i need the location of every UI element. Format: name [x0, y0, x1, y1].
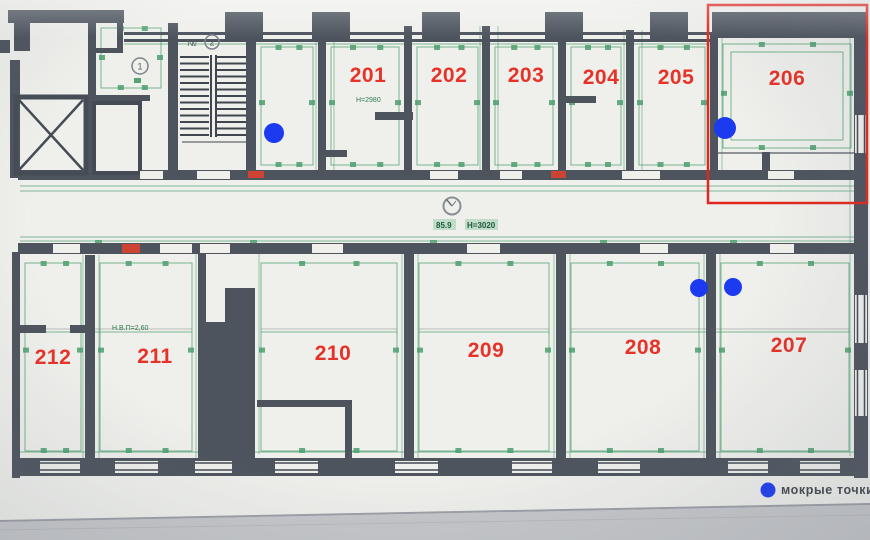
green-mark [607, 261, 613, 266]
wall-segment [257, 400, 352, 407]
green-mark [534, 45, 540, 50]
green-mark [41, 448, 47, 453]
wall-segment [18, 243, 868, 254]
room-number-label: 209 [468, 339, 505, 362]
green-mark [637, 100, 643, 105]
corridor-height-label: Н=3020 [467, 221, 496, 230]
wall-segment [205, 322, 227, 462]
door-opening [640, 244, 668, 253]
green-mark [474, 100, 480, 105]
room-number-label: 201 [350, 64, 387, 87]
green-mark [701, 100, 707, 105]
green-mark [808, 261, 814, 266]
door-opening [768, 171, 794, 179]
room-number-label: 212 [35, 346, 72, 369]
green-mark [759, 145, 765, 150]
closet-walls [94, 103, 140, 173]
green-mark [658, 261, 664, 266]
room-number-label: 207 [771, 334, 808, 357]
green-mark [350, 162, 356, 167]
door-opening [200, 244, 230, 253]
green-mark [757, 261, 763, 266]
stair-circle-number: 2 [209, 38, 214, 48]
green-mark [377, 162, 383, 167]
floorplan-photo: Н=2980 85.9 Н=3020 Н.В.П=2,60 № 2 1 2012… [0, 0, 870, 540]
green-mark [329, 100, 335, 105]
green-mark [757, 448, 763, 453]
wall-segment [312, 12, 350, 40]
door-opening [467, 244, 500, 253]
wall-segment [712, 12, 868, 38]
green-mark [395, 100, 401, 105]
wall-segment [96, 95, 150, 101]
wall-segment [710, 34, 718, 178]
wall-segment [225, 12, 263, 40]
wet-point-legend-dot [761, 483, 776, 498]
green-mark [534, 162, 540, 167]
green-mark [350, 45, 356, 50]
green-mark [695, 348, 701, 353]
green-mark [759, 42, 765, 47]
wall-segment [556, 254, 566, 462]
green-mark [721, 91, 727, 96]
green-mark [455, 448, 461, 453]
green-mark [126, 448, 132, 453]
wall-segment [404, 254, 414, 462]
green-mark [810, 145, 816, 150]
green-mark [126, 261, 132, 266]
green-mark [507, 448, 513, 453]
room-number-label: 208 [625, 336, 662, 359]
wet-point-dot [264, 123, 284, 143]
corridor-dial-icon [444, 198, 461, 215]
room-number-label: 204 [583, 66, 620, 89]
green-mark [163, 261, 169, 266]
wall-segment [85, 255, 95, 461]
green-mark [605, 45, 611, 50]
green-mark [605, 162, 611, 167]
wet-point-dot [690, 279, 708, 297]
green-mark [545, 348, 551, 353]
green-mark [23, 348, 29, 353]
green-mark [507, 261, 513, 266]
wall-segment [168, 23, 178, 178]
green-mark [296, 162, 302, 167]
green-mark [458, 162, 464, 167]
wall-segment [246, 23, 256, 178]
wall-segment [566, 96, 596, 103]
corridor-area-label: 85.9 [436, 221, 452, 230]
green-mark [259, 348, 265, 353]
door-opening [140, 171, 163, 179]
green-mark [276, 162, 282, 167]
room-number-label: 206 [769, 67, 806, 90]
green-mark [684, 162, 690, 167]
green-mark [142, 26, 148, 31]
green-mark [657, 162, 663, 167]
door-opening [53, 244, 80, 253]
green-mark [585, 45, 591, 50]
green-mark [98, 348, 104, 353]
green-mark [684, 45, 690, 50]
green-mark [658, 448, 664, 453]
door-opening [500, 171, 522, 179]
wall-segment [422, 12, 460, 40]
wall-segment [318, 30, 326, 178]
green-mark [569, 348, 575, 353]
wall-segment [20, 325, 46, 333]
wet-point-dot [724, 278, 742, 296]
green-mark [309, 100, 315, 105]
green-mark [845, 348, 851, 353]
green-mark [455, 261, 461, 266]
wall-segment [626, 30, 634, 178]
door-opening [160, 244, 192, 253]
green-mark [511, 162, 517, 167]
green-mark [810, 42, 816, 47]
room201-height-label: Н=2980 [356, 97, 381, 104]
door-opening [312, 244, 343, 253]
wall-segment [345, 400, 352, 461]
room-number-label: 203 [508, 64, 545, 87]
wet-point-dot [714, 117, 736, 139]
floorplan-drawing: Н=2980 85.9 Н=3020 Н.В.П=2,60 № 2 1 2012… [0, 0, 870, 540]
stair-stringer [215, 55, 217, 137]
wall-segment [0, 40, 10, 53]
room-number-label: 210 [315, 342, 352, 365]
green-mark [434, 45, 440, 50]
green-mark [434, 162, 440, 167]
green-mark [377, 45, 383, 50]
wall-segment [375, 112, 413, 120]
green-mark [118, 85, 124, 90]
green-mark [458, 45, 464, 50]
wall-segment [225, 288, 255, 462]
wall-segment [326, 150, 347, 157]
stair-stringer [210, 55, 212, 137]
wall-segment [70, 325, 95, 333]
green-mark [299, 448, 305, 453]
green-mark [607, 448, 613, 453]
green-mark [415, 100, 421, 105]
green-mark [188, 348, 194, 353]
green-mark [511, 45, 517, 50]
green-mark [353, 448, 359, 453]
wall-segment [404, 26, 412, 178]
green-mark [417, 348, 423, 353]
stair-no-mark: № [187, 38, 197, 48]
wall-segment [650, 12, 688, 40]
green-mark [259, 100, 265, 105]
door-marker [551, 171, 566, 178]
room-number-label: 205 [658, 66, 695, 89]
wall-segment [482, 26, 490, 178]
green-mark [63, 448, 69, 453]
green-mark [657, 45, 663, 50]
green-mark [63, 261, 69, 266]
green-mark [299, 261, 305, 266]
wall-segment [12, 252, 20, 478]
door-marker [122, 244, 140, 253]
wall-segment [14, 23, 30, 51]
green-mark [142, 85, 148, 90]
green-mark [549, 100, 555, 105]
green-mark [163, 448, 169, 453]
wall-segment [558, 26, 566, 178]
door-opening [622, 171, 660, 179]
green-mark [157, 55, 163, 60]
green-mark [493, 100, 499, 105]
wall-segment [117, 23, 123, 53]
door-opening [197, 171, 230, 179]
wall-segment [198, 254, 206, 462]
legend-label: мокрые точки [781, 483, 870, 497]
green-mark [617, 100, 623, 105]
room211-note-label: Н.В.П=2,60 [112, 325, 148, 332]
room-number-label: 202 [431, 64, 468, 87]
room-number-label: 211 [137, 345, 172, 368]
green-mark [847, 91, 853, 96]
green-mark [719, 348, 725, 353]
green-mark [276, 45, 282, 50]
green-mark [393, 348, 399, 353]
green-mark [77, 348, 83, 353]
green-mark [99, 55, 105, 60]
green-mark [585, 162, 591, 167]
door-opening [430, 171, 458, 179]
green-mark [808, 448, 814, 453]
green-mark [353, 261, 359, 266]
green-mark [41, 261, 47, 266]
door-opening [770, 244, 794, 253]
door-marker [248, 171, 264, 178]
green-mark [296, 45, 302, 50]
room1-circle-number: 1 [137, 62, 142, 72]
wall-segment [8, 10, 124, 23]
